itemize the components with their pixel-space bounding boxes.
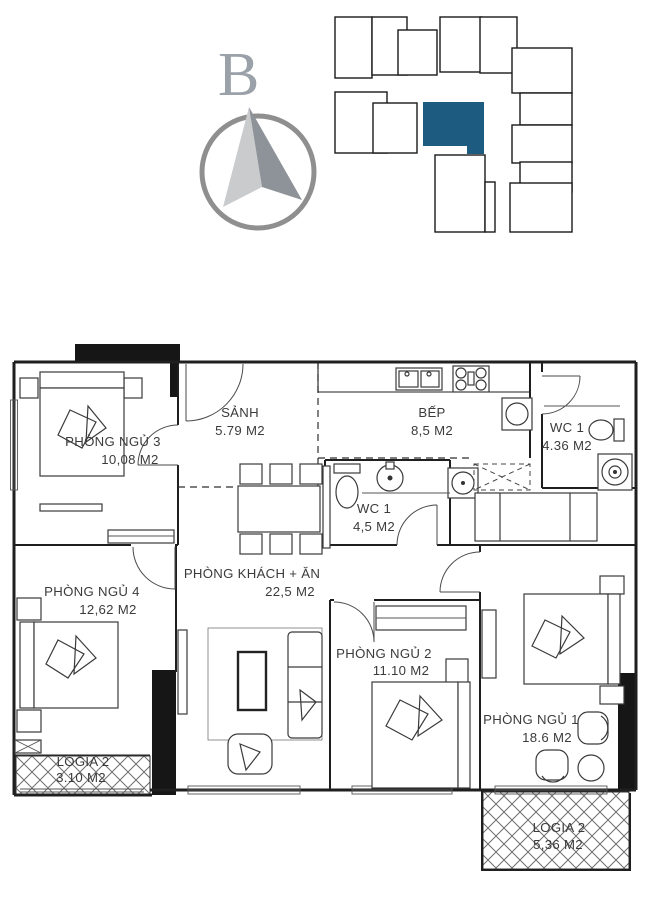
bed-icon [17, 598, 118, 732]
key-plan-unit [440, 17, 482, 72]
room-label: SẢNH [221, 405, 259, 420]
room-label: PHÒNG NGỦ 3 [65, 434, 161, 449]
dresser-icon [376, 606, 466, 630]
room-area: 10,08 M2 [101, 452, 158, 467]
room-area: 5.79 M2 [215, 423, 265, 438]
ac-unit-icon [15, 740, 41, 753]
room-area: 11.10 M2 [373, 663, 429, 678]
chair-icon [578, 712, 608, 744]
kitchen-sink-icon [396, 368, 442, 390]
header-graphics: B [0, 0, 650, 330]
coffee-table-icon [238, 652, 266, 710]
bed-icon [524, 576, 624, 704]
sink-icon [502, 398, 532, 430]
wardrobe-icon [482, 610, 496, 678]
key-plan [335, 17, 572, 232]
room-label: PHÒNG NGỦ 2 [336, 646, 432, 661]
room-label: LOGIA 2 [533, 820, 586, 835]
key-plan-unit [435, 155, 485, 232]
room-area: 18.6 M2 [522, 730, 572, 745]
room-area: 12,62 M2 [79, 602, 136, 617]
shelf-icon [40, 504, 102, 511]
chair-icon [270, 534, 292, 554]
stove-icon [453, 366, 489, 392]
room-label: WC 1 [550, 420, 584, 435]
room-area: 4,5 M2 [353, 519, 395, 534]
nightstand-icon [17, 710, 41, 732]
chair-icon [300, 464, 322, 484]
cabinet-icon [475, 493, 597, 541]
compass-letter: B [218, 41, 259, 109]
chair-icon [536, 750, 568, 782]
room-area: 8,5 M2 [411, 423, 453, 438]
chair-icon [270, 464, 292, 484]
room-label: WC 1 [357, 501, 391, 516]
armchair-icon [228, 734, 272, 774]
key-plan-unit [510, 183, 572, 232]
cabinet-icon [323, 466, 330, 548]
floor-plan-page: B [0, 0, 650, 898]
key-plan-unit [512, 125, 572, 163]
key-plan-unit [335, 17, 372, 78]
wardrobe-icon [108, 530, 174, 543]
room-area: 3.10 M2 [56, 770, 106, 785]
room-label: BẾP [418, 405, 445, 420]
sink-icon [362, 462, 450, 493]
sofa-icon [288, 632, 322, 738]
chair-icon [300, 534, 322, 554]
wall [75, 344, 636, 795]
room-area: 22,5 M2 [265, 584, 315, 599]
room-label: PHÒNG NGỦ 1 [483, 712, 579, 727]
key-plan-unit [373, 103, 417, 153]
room-area: 4.36 M2 [542, 438, 592, 453]
bed-icon [372, 659, 470, 788]
nightstand-icon [600, 576, 624, 594]
side-table-icon [578, 755, 604, 781]
key-plan-unit-highlight [423, 102, 484, 154]
compass-rose: B [202, 41, 314, 228]
key-plan-unit [520, 93, 572, 125]
washing-machine-icon [598, 454, 632, 490]
room-label: PHÒNG NGỦ 4 [44, 584, 140, 599]
nightstand-icon [17, 598, 41, 620]
nightstand-icon [446, 659, 468, 683]
room-label: PHÒNG KHÁCH + ĂN [184, 566, 320, 581]
key-plan-unit [512, 48, 572, 93]
dining-table-icon [238, 464, 322, 554]
chair-icon [240, 534, 262, 554]
key-plan-unit [485, 182, 495, 232]
toilet-icon [589, 419, 624, 441]
nightstand-icon [20, 378, 38, 398]
room-label: LOGIA 2 [57, 754, 110, 769]
key-plan-unit [398, 30, 437, 75]
nightstand-icon [124, 378, 142, 398]
wardrobe-icon [474, 464, 530, 490]
chair-icon [240, 464, 262, 484]
room-area: 5,36 M2 [533, 837, 583, 852]
nightstand-icon [600, 686, 624, 704]
floor-plan: SẢNH 5.79 M2 BẾP 8,5 M2 WC 1 4.36 M2 WC … [0, 330, 650, 898]
tv-console-icon [178, 630, 187, 714]
